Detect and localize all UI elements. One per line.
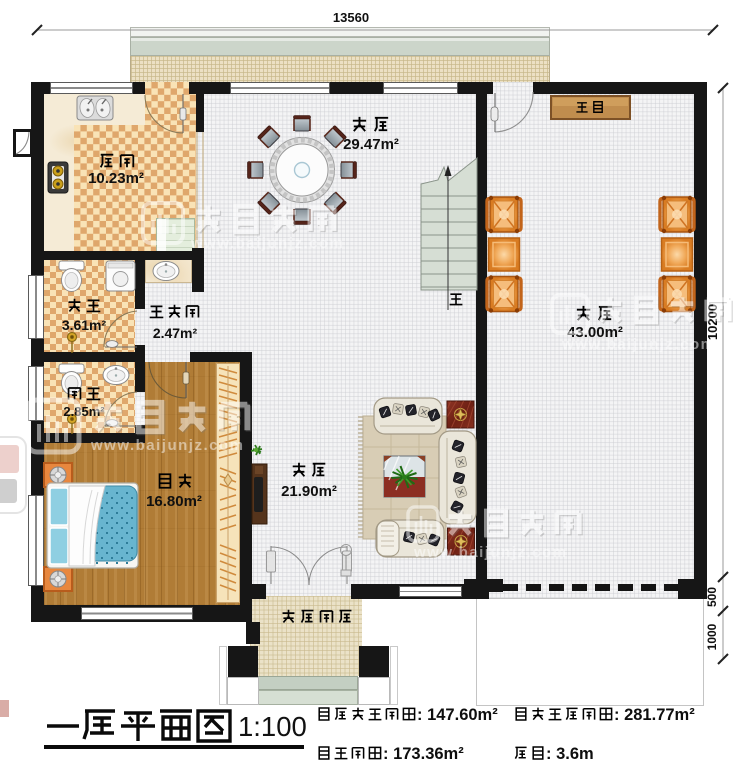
svg-text:13560: 13560 — [333, 10, 369, 25]
svg-text:2.47m²: 2.47m² — [153, 325, 198, 341]
svg-text:16.80m²: 16.80m² — [146, 493, 202, 510]
svg-text:21.90m²: 21.90m² — [281, 483, 337, 500]
svg-text:500: 500 — [705, 587, 719, 607]
svg-text:: 173.36m²: : 173.36m² — [383, 745, 464, 763]
svg-text:: 147.60m²: : 147.60m² — [417, 706, 498, 724]
svg-text:29.47m²: 29.47m² — [343, 136, 399, 153]
svg-text:www.baijunjz.com: www.baijunjz.com — [413, 544, 567, 561]
svg-text:www.baijunjz.com: www.baijunjz.com — [190, 235, 344, 252]
svg-text:: 281.77m²: : 281.77m² — [614, 706, 695, 724]
svg-text:www.baijunjz.com: www.baijunjz.com — [90, 437, 244, 454]
svg-text:: 3.6m: : 3.6m — [546, 745, 594, 763]
svg-text:3.61m²: 3.61m² — [62, 317, 107, 333]
svg-text:1000: 1000 — [705, 623, 719, 650]
svg-text:www.baijunjz.com: www.baijunjz.com — [561, 336, 715, 353]
svg-text:10.23m²: 10.23m² — [88, 170, 144, 187]
svg-text:1:100: 1:100 — [238, 711, 307, 742]
